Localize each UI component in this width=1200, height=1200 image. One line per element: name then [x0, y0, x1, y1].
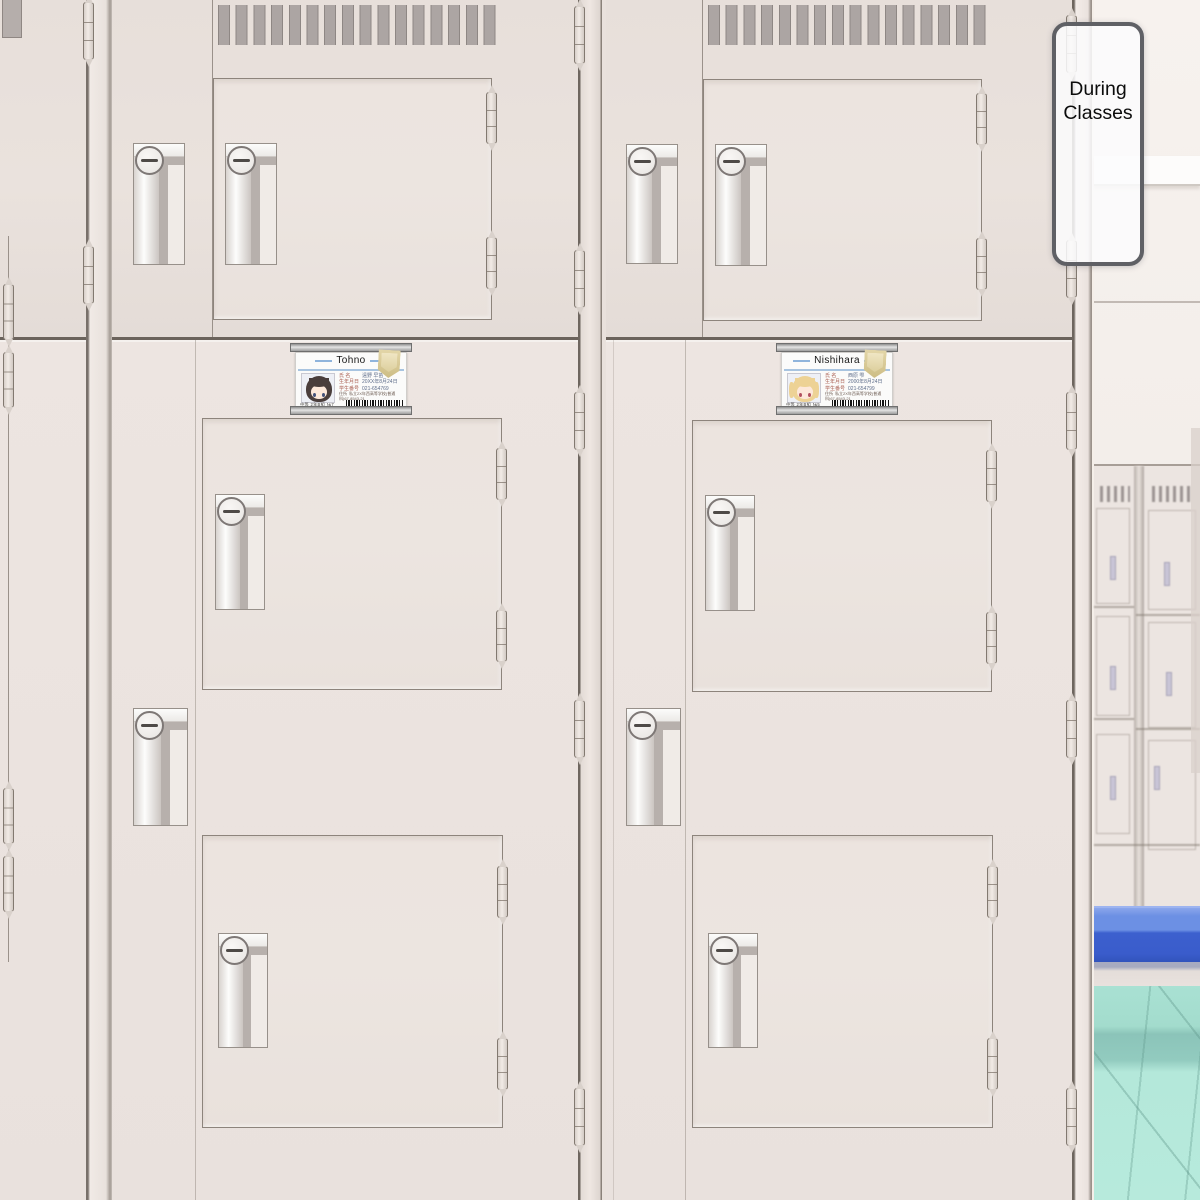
- locker-shelf-seam: [0, 337, 1080, 340]
- locker-handle[interactable]: [215, 494, 265, 610]
- locker-handle[interactable]: [626, 144, 678, 264]
- card-fields: 氏 名西原 雫 生年月日2000年8月24日 学生番号021-654799: [825, 373, 891, 392]
- frame-left: [86, 0, 112, 1200]
- locker-handle[interactable]: [705, 495, 755, 611]
- locker-handle[interactable]: [225, 143, 277, 265]
- hinge: [496, 448, 507, 500]
- bench: [1094, 906, 1200, 962]
- locker-handle[interactable]: [218, 933, 268, 1048]
- hinge: [987, 866, 998, 918]
- name-card-nishihara[interactable]: Nishihara 氏 名西原 雫 生年月日2000年8月24日 学生番号021…: [776, 343, 898, 415]
- column-divider: [195, 340, 196, 1200]
- locker-handle[interactable]: [626, 708, 681, 826]
- lock-icon: [135, 711, 164, 740]
- title-dash: [315, 360, 332, 362]
- hallway-floor: [1094, 986, 1200, 1200]
- hinge: [3, 284, 14, 340]
- ventilation-slats: [218, 5, 501, 45]
- hinge: [574, 1088, 585, 1146]
- student-id-card: Tohno 氏 名遠野 早苗 生年月日20XX年8月24日 学生番号021-65…: [295, 352, 407, 407]
- hinge: [574, 392, 585, 450]
- hinge: [976, 93, 987, 145]
- hinge: [1066, 700, 1077, 758]
- locker-base-strip: [1094, 962, 1200, 988]
- hinge: [3, 856, 14, 912]
- hinge: [1066, 1088, 1077, 1146]
- hinge: [486, 92, 497, 144]
- card-holder-rail: [290, 406, 412, 415]
- locker-handle[interactable]: [715, 144, 767, 266]
- student-photo: [787, 373, 821, 403]
- hinge: [83, 246, 94, 304]
- locker-handle[interactable]: [133, 708, 188, 826]
- hinge: [1066, 392, 1077, 450]
- hinge: [986, 612, 997, 664]
- far-wall-sliver: [1191, 428, 1200, 773]
- hinge: [3, 352, 14, 408]
- hinge: [496, 610, 507, 662]
- sign-text: During Classes: [1056, 78, 1140, 126]
- hinge: [574, 250, 585, 308]
- lock-icon: [710, 936, 739, 965]
- locker-handle[interactable]: [133, 143, 185, 265]
- card-fields: 氏 名遠野 早苗 生年月日20XX年8月24日 学生番号021-654769: [339, 373, 405, 392]
- during-classes-sign: During Classes: [1052, 22, 1144, 266]
- hinge: [976, 238, 987, 290]
- hinge: [497, 866, 508, 918]
- name-card-tohno[interactable]: Tohno 氏 名遠野 早苗 生年月日20XX年8月24日 学生番号021-65…: [290, 343, 412, 415]
- distant-lockers: [1094, 464, 1200, 908]
- hinge: [486, 237, 497, 289]
- column-divider: [613, 340, 614, 1200]
- lock-icon: [227, 146, 256, 175]
- hinge: [986, 450, 997, 502]
- lock-icon: [717, 147, 746, 176]
- lock-icon: [220, 936, 249, 965]
- card-holder-rail: [776, 406, 898, 415]
- vent-slat-partial: [2, 0, 22, 38]
- lock-icon: [217, 497, 246, 526]
- wall-trim-line: [1094, 301, 1200, 303]
- student-photo: [301, 373, 335, 403]
- hinge: [574, 6, 585, 64]
- lock-icon: [628, 147, 657, 176]
- title-dash: [793, 360, 810, 362]
- ventilation-slats: [708, 5, 991, 45]
- hinge: [3, 788, 14, 844]
- lock-icon: [628, 711, 657, 740]
- hinge: [497, 1038, 508, 1090]
- hinge: [987, 1038, 998, 1090]
- frame-center: [578, 0, 606, 1200]
- locker-room-scene: Tohno 氏 名遠野 早苗 生年月日20XX年8月24日 学生番号021-65…: [0, 0, 1200, 1200]
- hinge: [83, 2, 94, 60]
- lock-icon: [707, 498, 736, 527]
- student-name: Nishihara: [814, 355, 860, 366]
- student-name: Tohno: [336, 355, 365, 366]
- student-id-card: Nishihara 氏 名西原 雫 生年月日2000年8月24日 学生番号021…: [781, 352, 893, 407]
- locker-handle[interactable]: [708, 933, 758, 1048]
- distant-locker-frame: [1134, 466, 1144, 908]
- column-divider: [685, 340, 686, 1200]
- hinge: [574, 700, 585, 758]
- lock-icon: [135, 146, 164, 175]
